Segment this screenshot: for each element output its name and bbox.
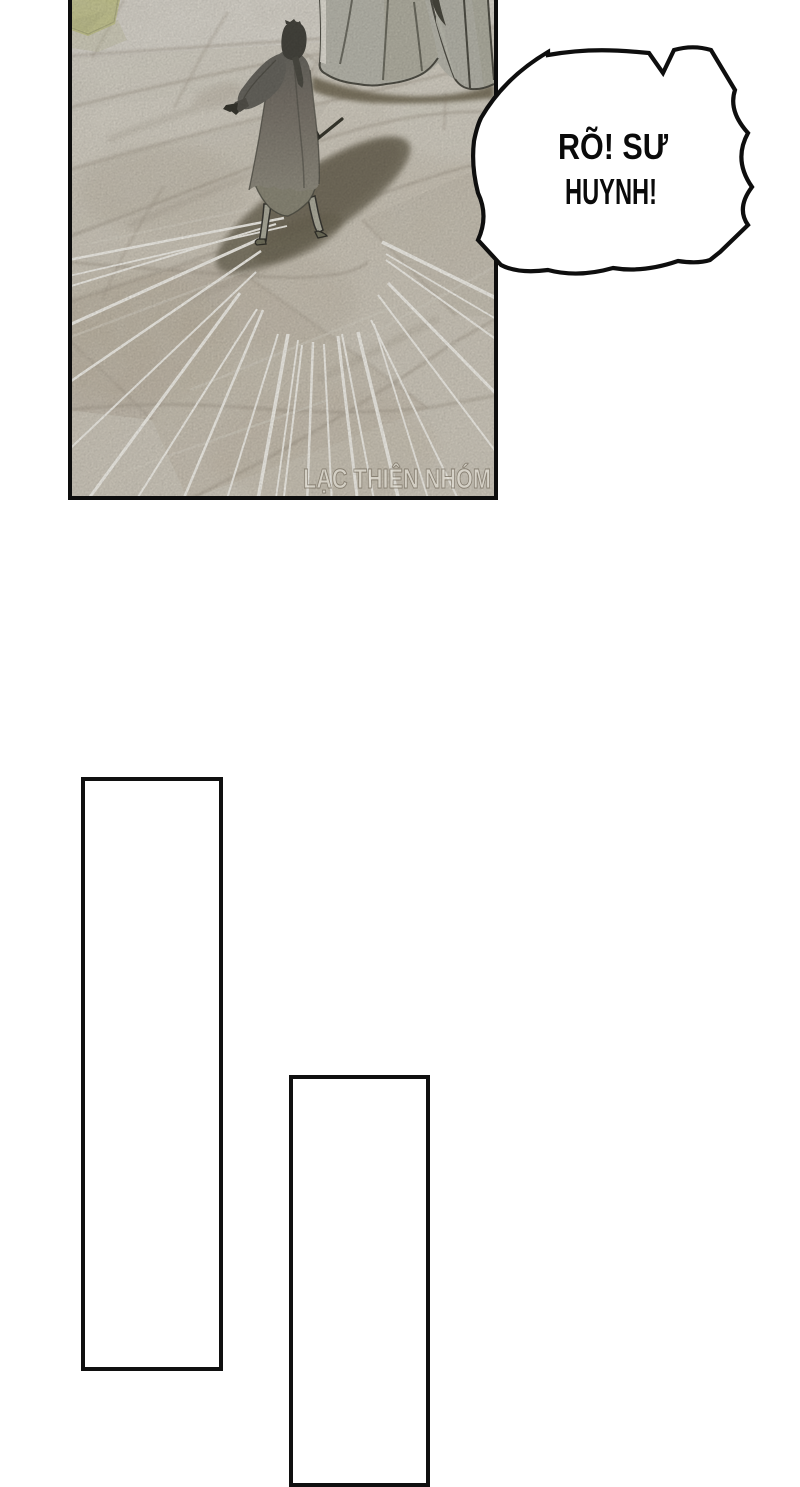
svg-text:LẠC THIÊN NHÓM: LẠC THIÊN NHÓM bbox=[303, 463, 491, 494]
svg-text:RÕ! SƯ: RÕ! SƯ bbox=[558, 125, 668, 167]
svg-text:HUYNH!: HUYNH! bbox=[565, 171, 657, 212]
